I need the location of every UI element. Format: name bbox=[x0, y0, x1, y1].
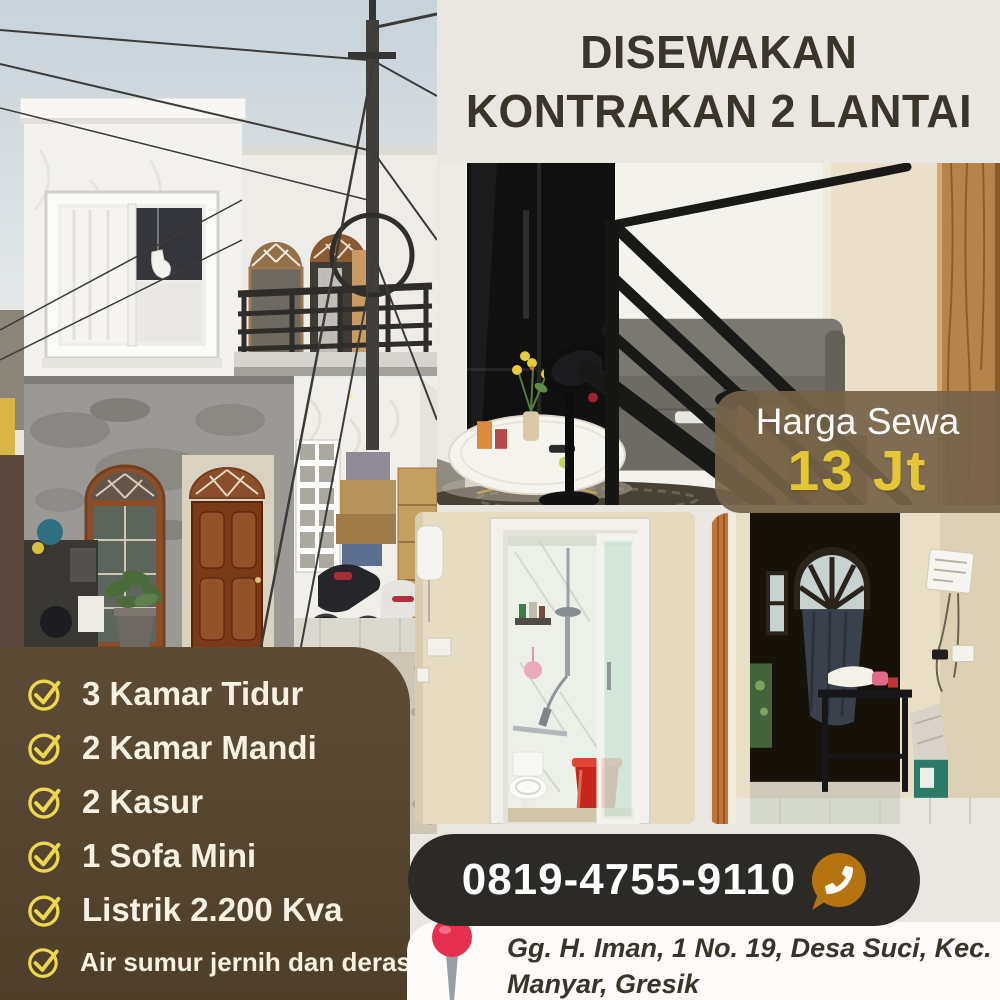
check-icon bbox=[26, 675, 64, 713]
check-icon bbox=[26, 891, 64, 929]
feature-row: Air sumur jernih dan deras bbox=[26, 937, 410, 987]
feature-row: Listrik 2.200 Kva bbox=[26, 883, 410, 937]
check-icon bbox=[26, 783, 64, 821]
price-label: Harga Sewa bbox=[756, 402, 960, 443]
phone-button[interactable]: 0819-4755-9110 bbox=[408, 834, 920, 926]
feature-row: 2 Kamar Mandi bbox=[26, 721, 410, 775]
title-line-2: KONTRAKAN 2 LANTAI bbox=[465, 82, 971, 141]
check-icon bbox=[26, 837, 64, 875]
phone-number: 0819-4755-9110 bbox=[462, 855, 797, 905]
check-icon bbox=[26, 729, 64, 767]
whatsapp-phone-icon[interactable] bbox=[812, 853, 866, 907]
feature-label: 2 Kasur bbox=[82, 783, 203, 821]
address-text: Gg. H. Iman, 1 No. 19, Desa Suci, Kec. M… bbox=[507, 922, 1000, 1000]
feature-label: 3 Kamar Tidur bbox=[82, 675, 303, 713]
feature-row: 1 Sofa Mini bbox=[26, 829, 410, 883]
feature-label: 2 Kamar Mandi bbox=[82, 729, 317, 767]
features-panel: 3 Kamar Tidur 2 Kamar Mandi 2 Kasur 1 So… bbox=[0, 647, 410, 1000]
feature-row: 2 Kasur bbox=[26, 775, 410, 829]
address-line-1: Gg. H. Iman, 1 No. 19, Desa Suci, Kec. bbox=[507, 931, 1000, 967]
price-value: 13 Jt bbox=[788, 442, 928, 502]
address-line-2: Manyar, Gresik bbox=[507, 967, 1000, 1000]
feature-row: 3 Kamar Tidur bbox=[26, 667, 410, 721]
map-pin-icon bbox=[429, 916, 475, 1000]
price-overlay: Harga Sewa 13 Jt bbox=[715, 391, 1000, 513]
check-icon bbox=[26, 944, 62, 980]
feature-label: 1 Sofa Mini bbox=[82, 837, 256, 875]
poster-title: DISEWAKAN KONTRAKAN 2 LANTAI bbox=[437, 0, 1000, 163]
photo-bathroom bbox=[415, 512, 695, 824]
feature-label: Listrik 2.200 Kva bbox=[82, 891, 343, 929]
feature-label: Air sumur jernih dan deras bbox=[80, 947, 411, 978]
rental-flyer-poster: DISEWAKAN KONTRAKAN 2 LANTAI bbox=[0, 0, 1000, 1000]
address-card: Gg. H. Iman, 1 No. 19, Desa Suci, Kec. M… bbox=[407, 922, 1000, 1000]
title-line-1: DISEWAKAN bbox=[580, 23, 857, 82]
photo-room-arched-window bbox=[710, 513, 1000, 824]
